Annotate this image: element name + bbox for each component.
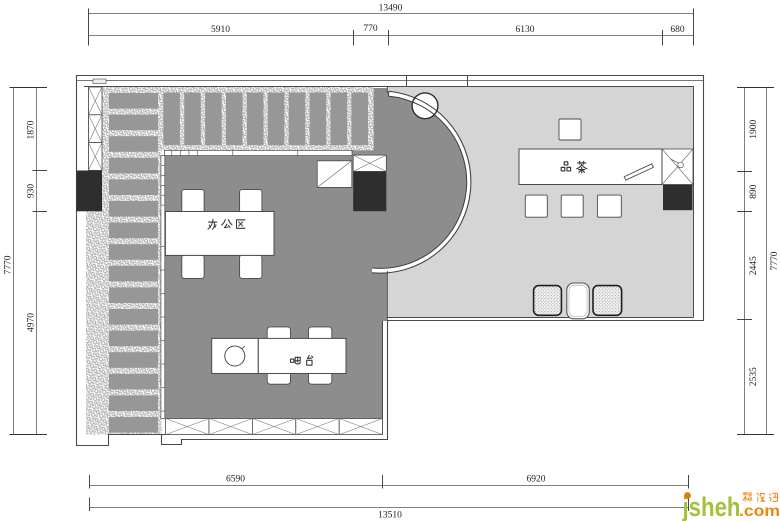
svg-text:4970: 4970 <box>27 313 37 332</box>
svg-text:.com: .com <box>739 503 780 520</box>
svg-text:7770: 7770 <box>4 255 14 274</box>
svg-text:930: 930 <box>27 184 37 199</box>
svg-text:680: 680 <box>670 25 685 35</box>
svg-text:7770: 7770 <box>770 251 780 270</box>
svg-text:5910: 5910 <box>211 25 230 35</box>
svg-text:6130: 6130 <box>516 25 535 35</box>
svg-text:1870: 1870 <box>27 120 37 139</box>
svg-text:1900: 1900 <box>749 120 759 139</box>
svg-text:13510: 13510 <box>378 511 402 521</box>
svg-text:6920: 6920 <box>527 475 546 485</box>
svg-text:2535: 2535 <box>749 367 759 386</box>
svg-text:2445: 2445 <box>749 256 759 275</box>
svg-text:13490: 13490 <box>379 4 403 14</box>
svg-text:770: 770 <box>363 24 378 34</box>
svg-text:6590: 6590 <box>226 475 245 485</box>
svg-text:890: 890 <box>749 184 759 199</box>
